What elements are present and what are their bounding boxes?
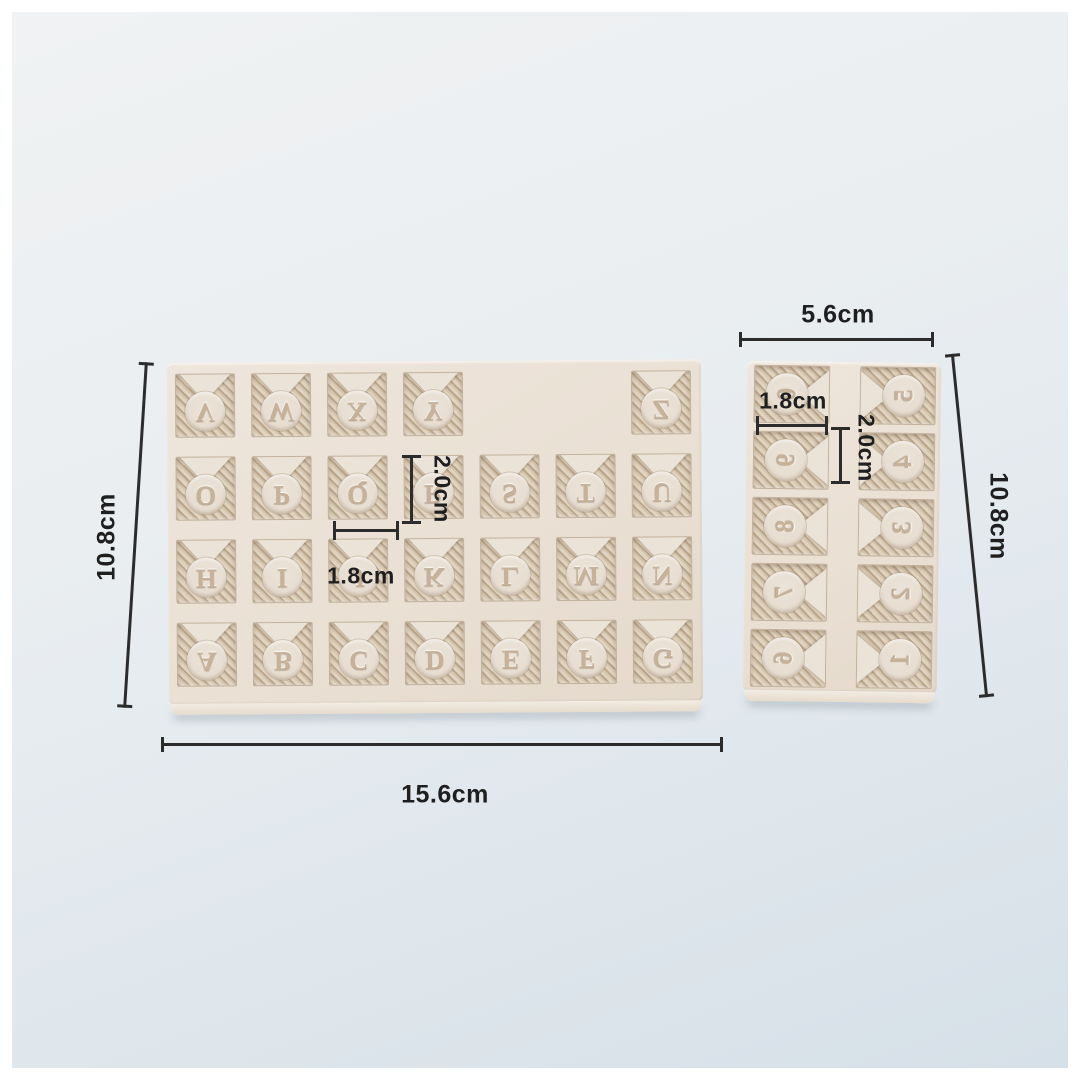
embossed-character: 7 xyxy=(771,586,797,599)
dim-small-cell-width-label: 1.8cm xyxy=(759,388,827,415)
cavity-disc: 5 xyxy=(883,375,926,418)
cavity-disc: H xyxy=(186,557,226,597)
cavity-9: 9 xyxy=(753,431,830,490)
embossed-character: S xyxy=(502,479,517,506)
dim-small-width-label: 5.6cm xyxy=(801,301,874,330)
dim-large-cell-width-label: 1.8cm xyxy=(327,563,395,590)
cavity-disc: O xyxy=(186,474,226,514)
cavity-6: 6 xyxy=(750,629,827,688)
cavity-disc: 3 xyxy=(881,507,924,550)
cavity-g: G xyxy=(633,619,693,683)
embossed-character: 8 xyxy=(772,520,798,533)
embossed-character: P xyxy=(273,481,290,508)
cavity-v: V xyxy=(175,373,235,437)
dim-large-cell-width-line xyxy=(333,529,399,532)
cavity-disc: 7 xyxy=(763,571,806,614)
cavity-f: F xyxy=(557,620,617,684)
embossed-character: C xyxy=(349,646,369,673)
cavity-disc: G xyxy=(643,637,683,677)
dim-large-cell-height-line xyxy=(410,455,413,524)
cavity-k: K xyxy=(404,538,464,602)
cavity-8: 8 xyxy=(752,497,829,556)
cavity-disc: P xyxy=(262,474,302,514)
cavity-disc: 9 xyxy=(765,439,808,482)
embossed-character: A xyxy=(197,647,217,674)
alphabet-mold: VWXYZOPQRSTUHIJKLMNABCDEFG xyxy=(167,359,703,705)
cavity-3: 3 xyxy=(858,498,935,557)
embossed-character: U xyxy=(652,478,672,505)
cavity-z: Z xyxy=(631,370,691,434)
cavity-disc: C xyxy=(339,639,379,679)
embossed-character: V xyxy=(195,398,215,425)
dim-large-cell-height-label: 2.0cm xyxy=(429,455,456,523)
cavity-x: X xyxy=(327,372,387,436)
cavity-disc: Y xyxy=(413,390,453,430)
cavity-disc: K xyxy=(414,556,454,596)
embossed-character: L xyxy=(501,562,519,589)
embossed-character: K xyxy=(424,562,445,589)
cavity-disc: Q xyxy=(338,473,378,513)
embossed-character: X xyxy=(347,397,367,424)
embossed-character: O xyxy=(195,481,216,508)
embossed-character: B xyxy=(274,647,292,674)
cavity-i: I xyxy=(252,539,312,603)
cavity-h: H xyxy=(176,539,236,603)
cavity-s: S xyxy=(479,454,539,518)
cavity-disc: 6 xyxy=(762,637,805,680)
dim-small-cell-height-line xyxy=(839,427,842,484)
cavity-1: 1 xyxy=(856,630,933,689)
dim-large-height-label: 10.8cm xyxy=(93,493,122,581)
cavity-disc: 8 xyxy=(764,505,807,548)
cavity-disc: L xyxy=(490,555,530,595)
cavity-e: E xyxy=(481,620,541,684)
cavity-p: P xyxy=(251,456,311,520)
cavity-m: M xyxy=(556,537,616,601)
embossed-character: F xyxy=(579,644,596,671)
cavity-q: Q xyxy=(327,455,387,519)
dim-small-cell-width-line xyxy=(756,424,828,427)
cavity-disc: T xyxy=(566,472,606,512)
cavity-n: N xyxy=(632,536,692,600)
cavity-7: 7 xyxy=(751,563,828,622)
dim-large-width-label: 15.6cm xyxy=(401,781,489,810)
embossed-character: 9 xyxy=(773,454,799,467)
cavity-o: O xyxy=(175,456,235,520)
embossed-character: Z xyxy=(652,395,670,422)
cavity-disc: N xyxy=(642,554,682,594)
cavity-disc: 2 xyxy=(880,573,923,616)
embossed-character: M xyxy=(573,561,599,588)
embossed-character: D xyxy=(425,645,445,672)
embossed-character: 4 xyxy=(890,455,916,468)
cavity-w: W xyxy=(251,373,311,437)
embossed-character: Y xyxy=(423,396,443,423)
embossed-character: 3 xyxy=(889,521,915,534)
embossed-character: W xyxy=(268,397,295,424)
cavity-l: L xyxy=(480,537,540,601)
cavity-y: Y xyxy=(403,372,463,436)
cavity-disc: 4 xyxy=(882,441,925,484)
embossed-character: 1 xyxy=(887,653,913,666)
dim-large-width-line xyxy=(161,743,723,746)
cavity-2: 2 xyxy=(857,564,934,623)
cavity-disc: V xyxy=(185,391,225,431)
dim-small-cell-height-label: 2.0cm xyxy=(853,414,880,482)
dim-small-height-label: 10.8cm xyxy=(984,472,1013,560)
cavity-disc: A xyxy=(187,640,227,680)
cavity-disc: I xyxy=(262,557,302,597)
cavity-disc: B xyxy=(263,640,303,680)
embossed-character: E xyxy=(502,645,520,672)
cavity-disc: M xyxy=(566,555,606,595)
cavity-disc: U xyxy=(642,471,682,511)
embossed-character: I xyxy=(277,564,288,591)
embossed-character: 2 xyxy=(888,587,914,600)
embossed-character: 5 xyxy=(891,389,917,402)
cavity-t: T xyxy=(555,454,615,518)
cavity-a: A xyxy=(177,622,237,686)
cavity-b: B xyxy=(253,622,313,686)
cavity-disc: 1 xyxy=(879,639,922,682)
embossed-character: Q xyxy=(347,480,368,507)
embossed-character: H xyxy=(196,564,217,591)
cavity-disc: X xyxy=(337,390,377,430)
cavity-disc: S xyxy=(490,472,530,512)
cavity-u: U xyxy=(631,453,691,517)
cavity-disc: D xyxy=(415,639,455,679)
cavity-disc: Z xyxy=(641,388,681,428)
cavity-disc: E xyxy=(491,638,531,678)
embossed-character: T xyxy=(577,478,595,505)
embossed-character: N xyxy=(652,561,672,588)
embossed-character: 6 xyxy=(770,652,796,665)
cavity-disc: F xyxy=(567,638,607,678)
embossed-character: G xyxy=(652,644,673,671)
cavity-disc: W xyxy=(261,391,301,431)
cavity-c: C xyxy=(329,621,389,685)
cavity-d: D xyxy=(405,621,465,685)
dim-small-width-line xyxy=(739,338,934,341)
